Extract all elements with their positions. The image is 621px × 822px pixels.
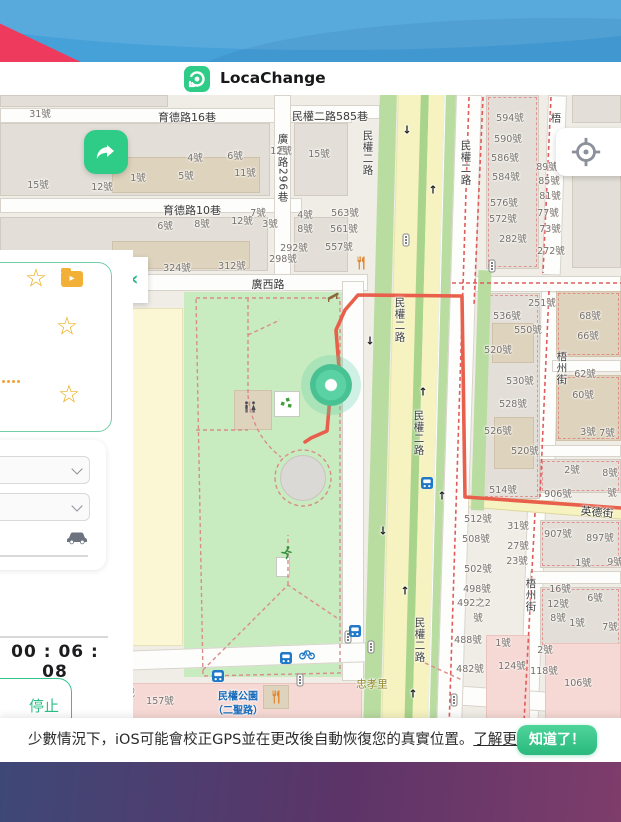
playground-icon <box>280 396 294 410</box>
favorite-star-icon[interactable]: ☆ <box>58 382 80 407</box>
got-it-button[interactable]: 知道了！ <box>517 725 597 755</box>
traffic-light-icon <box>296 673 304 687</box>
fitness-icon <box>280 546 293 561</box>
traffic-light-icon <box>367 640 375 654</box>
gps-notice-bar: 少數情況下，iOS可能會校正GPS並在更改後自動恢復您的真實位置。了解更多. 知… <box>0 718 621 762</box>
traffic-light-icon <box>402 233 410 247</box>
top-banner <box>0 0 621 62</box>
notice-text: 少數情況下，iOS可能會校正GPS並在更改後自動恢復您的真實位置。了解更多. <box>28 718 536 762</box>
locachange-logo-icon <box>184 66 210 92</box>
current-location-marker <box>310 364 352 406</box>
favorite-star-icon[interactable]: ☆ <box>56 314 78 339</box>
restaurant-icon <box>271 691 282 704</box>
divider <box>0 555 88 557</box>
traffic-light-icon <box>450 693 458 707</box>
app-header: LocaChange <box>0 62 621 96</box>
chevron-down-icon <box>71 500 82 511</box>
car-speed-icon[interactable] <box>66 528 90 546</box>
bike-icon <box>299 649 315 660</box>
share-arrow-icon <box>94 140 118 164</box>
favorite-star-icon[interactable]: ☆ <box>25 266 47 291</box>
favorites-card <box>0 262 112 432</box>
restaurant-icon <box>356 257 367 270</box>
app-title: LocaChange <box>220 62 326 95</box>
stop-button-label: 停止 <box>29 695 59 716</box>
mode-select[interactable] <box>0 456 90 484</box>
bus-icon <box>280 652 293 665</box>
footer-gradient <box>0 762 621 822</box>
bus-icon <box>421 477 434 490</box>
crosshair-icon <box>569 135 603 169</box>
route-line <box>305 295 621 508</box>
app-window: LocaChange <box>0 0 621 822</box>
sidebar: ☆ ▸ ☆ ☆ 00 : 06 : 08 停止 <box>0 250 133 762</box>
route-select[interactable] <box>0 493 90 521</box>
traffic-light-icon <box>488 259 496 273</box>
bus-icon <box>212 670 225 683</box>
coordinate-dots <box>2 380 5 383</box>
locate-panel[interactable] <box>556 128 621 176</box>
collection-folder-icon[interactable]: ▸ <box>61 271 83 287</box>
bus-icon <box>349 625 362 638</box>
elapsed-timer: 00 : 06 : 08 <box>0 642 110 682</box>
chevron-down-icon <box>71 463 82 474</box>
toilets-icon <box>243 401 258 413</box>
divider <box>0 636 108 638</box>
bench-icon <box>325 291 341 303</box>
share-button[interactable] <box>84 130 128 174</box>
